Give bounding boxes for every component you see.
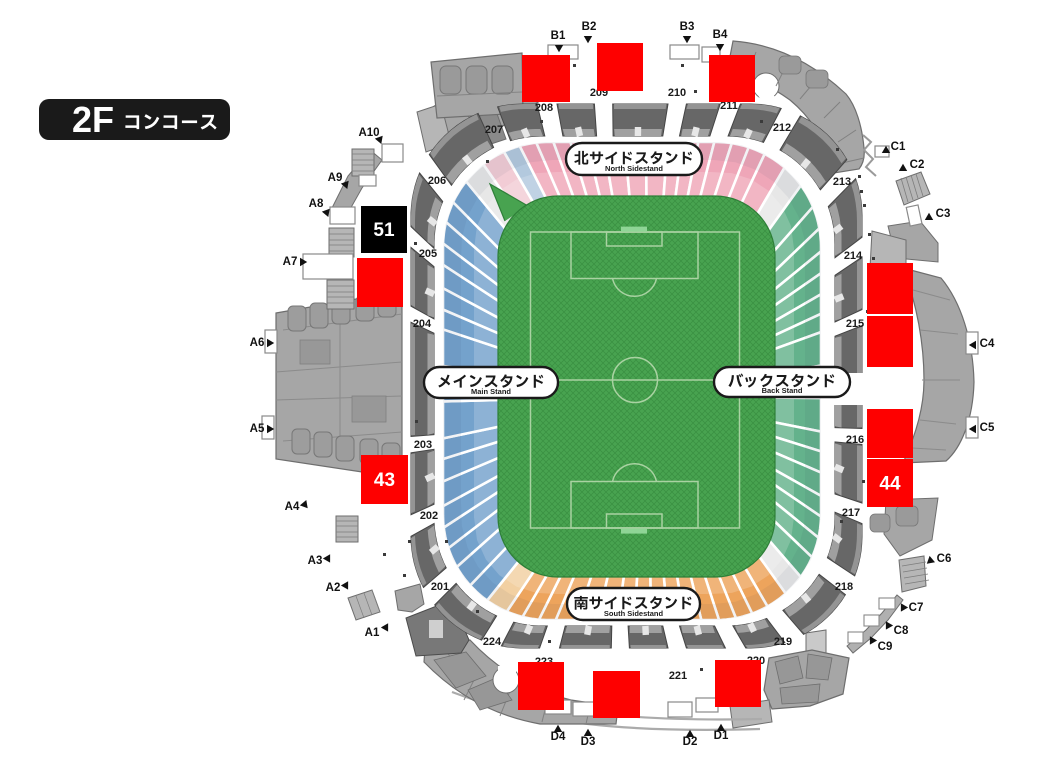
svg-text:A8: A8 [309,198,324,210]
svg-text:216: 216 [846,434,864,446]
svg-text:214: 214 [844,250,863,262]
svg-text:224: 224 [483,636,502,648]
svg-text:C8: C8 [894,625,909,637]
svg-text:C6: C6 [937,553,952,565]
svg-text:A3: A3 [308,555,323,567]
svg-text:Back Stand: Back Stand [762,386,803,395]
svg-text:D2: D2 [683,736,698,748]
svg-text:D1: D1 [714,730,729,742]
svg-text:C4: C4 [980,338,995,350]
svg-text:North Sidestand: North Sidestand [605,164,663,173]
svg-text:51: 51 [373,220,395,241]
svg-text:201: 201 [431,581,449,593]
svg-text:A2: A2 [326,582,341,594]
svg-text:221: 221 [669,670,687,682]
svg-text:213: 213 [833,176,851,188]
svg-text:South Sidestand: South Sidestand [604,609,664,618]
svg-text:43: 43 [374,470,395,491]
svg-text:203: 203 [414,439,432,451]
svg-text:44: 44 [879,474,901,495]
svg-text:202: 202 [420,510,438,522]
svg-text:2F: 2F [72,99,114,140]
svg-text:B3: B3 [680,21,695,33]
svg-text:D3: D3 [581,736,596,748]
svg-text:C1: C1 [891,141,906,153]
svg-text:A10: A10 [358,127,379,139]
svg-text:215: 215 [846,318,864,330]
svg-text:C9: C9 [878,641,893,653]
svg-text:B1: B1 [551,30,566,42]
svg-text:Main Stand: Main Stand [471,387,511,396]
svg-text:205: 205 [419,248,437,260]
svg-text:B2: B2 [582,21,597,33]
svg-text:208: 208 [535,102,553,114]
svg-text:210: 210 [668,87,686,99]
svg-text:A7: A7 [283,256,298,268]
svg-text:A1: A1 [365,627,380,639]
svg-text:C5: C5 [980,422,995,434]
svg-text:A6: A6 [250,337,265,349]
svg-text:C2: C2 [910,159,925,171]
svg-text:B4: B4 [713,29,728,41]
svg-text:207: 207 [485,124,503,136]
svg-text:219: 219 [774,636,792,648]
svg-text:D4: D4 [551,731,566,743]
svg-text:217: 217 [842,507,860,519]
svg-text:212: 212 [773,122,791,134]
svg-text:C7: C7 [909,602,924,614]
svg-text:206: 206 [428,175,446,187]
svg-text:218: 218 [835,581,853,593]
svg-text:204: 204 [413,318,432,330]
svg-text:A4: A4 [285,501,300,513]
svg-text:C3: C3 [936,208,951,220]
svg-text:A9: A9 [328,172,343,184]
svg-text:A5: A5 [250,423,265,435]
